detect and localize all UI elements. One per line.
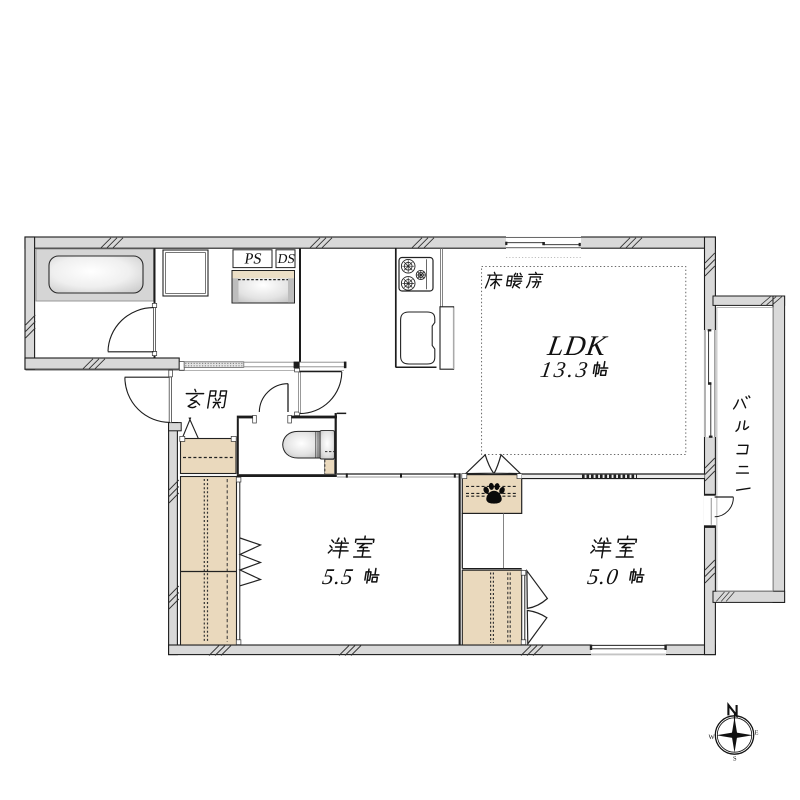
svg-text:W: W: [709, 734, 716, 741]
svg-text:E: E: [755, 730, 759, 737]
svg-text:S: S: [733, 756, 737, 763]
svg-text:5.5: 5.5: [321, 564, 356, 589]
svg-text:DS: DS: [277, 251, 297, 266]
svg-text:PS: PS: [243, 251, 263, 268]
svg-text:5.0: 5.0: [586, 564, 621, 589]
svg-text:13.3: 13.3: [539, 357, 592, 382]
